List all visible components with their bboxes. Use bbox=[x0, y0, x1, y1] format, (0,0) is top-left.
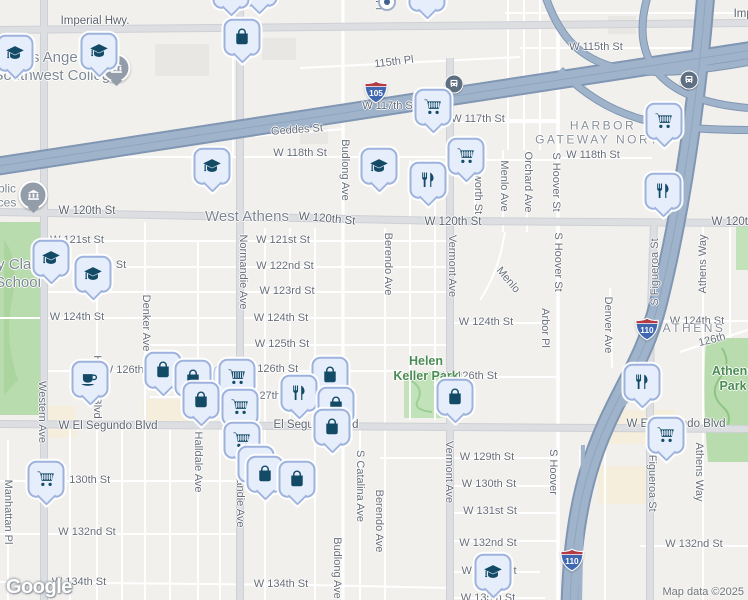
shopping-bag-icon bbox=[255, 464, 276, 485]
street-label: W 124th St bbox=[254, 312, 308, 324]
google-logo[interactable]: Google bbox=[6, 576, 72, 599]
street-label: W 123rd St bbox=[259, 285, 314, 297]
street-label: Denver Ave bbox=[602, 297, 614, 354]
street-label: Halldale Ave bbox=[192, 432, 204, 493]
route-shield-110: 110 bbox=[559, 548, 585, 573]
street-label: Berendo Ave bbox=[373, 490, 385, 553]
street-label: W 132nd St bbox=[665, 538, 722, 550]
cafe-marker[interactable] bbox=[213, 0, 250, 9]
area-label: ATHENS bbox=[663, 321, 726, 335]
street-label: S Hoover St bbox=[552, 232, 564, 291]
school-marker[interactable] bbox=[0, 35, 34, 72]
street-label: W 125th St bbox=[255, 338, 309, 350]
coffee-cup-icon bbox=[80, 369, 101, 390]
shopping-bag-icon bbox=[232, 27, 253, 48]
street-label: W 132nd St bbox=[459, 537, 516, 549]
street-label: W 118th St bbox=[566, 149, 620, 161]
restaurant-marker[interactable] bbox=[409, 0, 446, 12]
shopping-cart-icon bbox=[230, 397, 251, 418]
street-label: S Catalina Ave bbox=[354, 450, 366, 522]
street-label: W 130th St bbox=[462, 478, 516, 490]
street-label: Menlo Ave bbox=[498, 160, 510, 211]
restaurant-icon bbox=[289, 383, 310, 404]
store-marker[interactable] bbox=[224, 19, 261, 56]
street-label: W 134th St bbox=[254, 578, 308, 590]
shopping-bag-icon bbox=[153, 360, 174, 381]
shopping-cart-icon bbox=[456, 146, 477, 167]
area-label: West Athens bbox=[205, 208, 289, 226]
street-label: W 122nd St bbox=[256, 260, 313, 272]
street-label: Denker Ave bbox=[140, 295, 152, 352]
street-label: W 120th St bbox=[712, 216, 748, 228]
street-label: Imperial Hwy. bbox=[734, 8, 748, 20]
transit-station-icon bbox=[449, 79, 460, 90]
street-label: W 120th St bbox=[425, 216, 482, 228]
restaurant-marker[interactable] bbox=[281, 375, 318, 412]
supermarket-marker[interactable] bbox=[222, 389, 259, 426]
street-label: Athens Way bbox=[697, 235, 709, 294]
street-label: W 121st St bbox=[256, 234, 310, 246]
area-label: blic ces bbox=[0, 182, 16, 211]
store-marker[interactable] bbox=[314, 409, 351, 446]
street-label: St bbox=[116, 259, 126, 271]
shopping-bag-icon bbox=[287, 469, 308, 490]
shopping-bag-icon bbox=[445, 387, 466, 408]
shopping-cart-icon bbox=[423, 97, 444, 118]
store-marker[interactable] bbox=[183, 382, 220, 419]
street-label: Athens Way bbox=[693, 443, 705, 502]
street-label: W 129th St bbox=[460, 451, 514, 463]
graduation-cap-icon bbox=[83, 264, 104, 285]
poi-dot-icon bbox=[384, 0, 390, 5]
street-label: Budlong Ave bbox=[339, 139, 351, 201]
route-shield-105: 105 bbox=[363, 80, 389, 105]
cafe-marker[interactable] bbox=[72, 361, 109, 398]
street-label: Normandie Ave bbox=[237, 234, 249, 309]
transit-station-badge[interactable] bbox=[680, 71, 699, 90]
svg-text:110: 110 bbox=[640, 326, 654, 335]
store-marker[interactable] bbox=[437, 379, 474, 416]
restaurant-marker[interactable] bbox=[624, 364, 661, 401]
street-label: W 132nd St bbox=[58, 526, 115, 538]
street-label: Imperial Hwy. bbox=[61, 15, 130, 27]
restaurant-icon bbox=[418, 170, 439, 191]
street-label: W 117th St bbox=[451, 113, 505, 125]
school-marker[interactable] bbox=[81, 33, 118, 70]
coffee-cup-icon bbox=[221, 0, 242, 1]
street-label: W 115th St bbox=[569, 41, 623, 53]
street-label: Arbor Pl bbox=[539, 308, 551, 348]
street-label: S Hoover bbox=[547, 449, 559, 495]
supermarket-marker[interactable] bbox=[646, 103, 683, 140]
route-shield-110: 110 bbox=[634, 317, 660, 342]
street-label: W El Segundo Blvd bbox=[58, 420, 157, 432]
interstate-shield-icon: 110 bbox=[634, 317, 660, 342]
street-label: worth St bbox=[472, 174, 484, 214]
restaurant-icon bbox=[632, 372, 653, 393]
school-marker[interactable] bbox=[33, 240, 70, 277]
transit-station-icon bbox=[684, 75, 695, 86]
graduation-cap-icon bbox=[483, 562, 504, 583]
street-label: Orchard Ave bbox=[522, 152, 534, 213]
street-label: Vermont Ave bbox=[446, 235, 458, 297]
map-attribution: Map data ©2025 bbox=[663, 586, 745, 598]
shopping-cart-icon bbox=[36, 469, 57, 490]
supermarket-marker[interactable] bbox=[28, 461, 65, 498]
street-label: W 131st St bbox=[463, 505, 517, 517]
graduation-cap-icon bbox=[5, 43, 26, 64]
school-marker[interactable] bbox=[75, 256, 112, 293]
street-label: W 120th St bbox=[59, 205, 116, 217]
shopping-cart-icon bbox=[227, 367, 248, 388]
shopping-cart-icon bbox=[654, 111, 675, 132]
museum-icon bbox=[25, 187, 41, 203]
interstate-shield-icon: 105 bbox=[363, 80, 389, 105]
street-label: Vermont Ave bbox=[443, 441, 455, 503]
map-viewport[interactable]: Imperial Hwy.Imperial Hwy.115th PlW 115t… bbox=[0, 0, 748, 600]
street-label: S Figueroa St bbox=[646, 444, 658, 511]
supermarket-marker[interactable] bbox=[648, 417, 685, 454]
svg-text:105: 105 bbox=[369, 89, 383, 98]
shopping-bag-icon bbox=[322, 417, 343, 438]
restaurant-marker[interactable] bbox=[645, 173, 682, 210]
interstate-shield-icon: 110 bbox=[559, 548, 585, 573]
svg-text:110: 110 bbox=[565, 557, 579, 566]
restaurant-marker[interactable] bbox=[410, 162, 447, 199]
graduation-cap-icon bbox=[41, 248, 62, 269]
street-label: S Hoover St bbox=[550, 152, 562, 211]
park-label: Athens Park bbox=[712, 364, 748, 394]
shopping-cart-icon bbox=[656, 425, 677, 446]
street-label: Berendo Ave bbox=[382, 233, 394, 296]
school-marker[interactable] bbox=[194, 148, 231, 185]
street-label: Budlong Ave bbox=[331, 537, 343, 599]
street-label: Manhattan Pl bbox=[2, 480, 14, 545]
restaurant-icon bbox=[417, 0, 438, 4]
street-label: Western Ave bbox=[36, 381, 48, 443]
street-label: W 124th St bbox=[459, 316, 513, 328]
shopping-bag-icon bbox=[191, 390, 212, 411]
graduation-cap-icon bbox=[202, 156, 223, 177]
shopping-bag-icon bbox=[320, 365, 341, 386]
supermarket-marker[interactable] bbox=[415, 89, 452, 126]
store-marker[interactable] bbox=[279, 461, 316, 498]
graduation-cap-icon bbox=[369, 156, 390, 177]
school-marker[interactable] bbox=[475, 554, 512, 591]
school-marker[interactable] bbox=[361, 148, 398, 185]
street-label: W 124th St bbox=[50, 311, 104, 323]
restaurant-icon bbox=[653, 181, 674, 202]
supermarket-marker[interactable] bbox=[448, 138, 485, 175]
graduation-cap-icon bbox=[89, 41, 110, 62]
civic-poi-badge[interactable] bbox=[19, 181, 48, 210]
street-label: S Figueroa St bbox=[649, 238, 661, 305]
street-label: W 118th St bbox=[273, 147, 327, 159]
